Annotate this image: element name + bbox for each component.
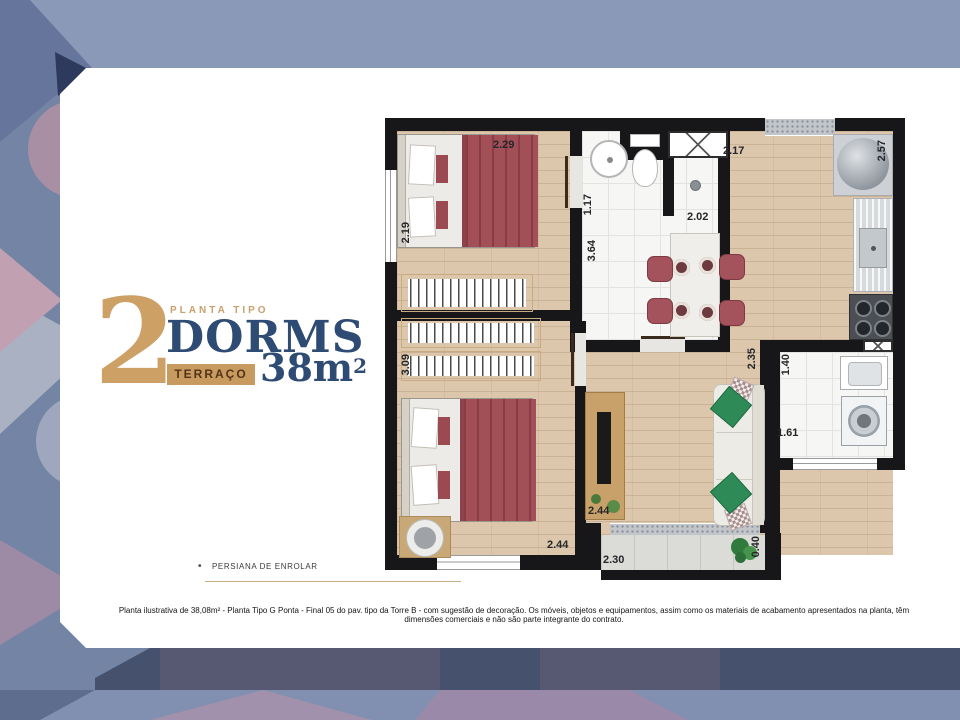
dining-chair bbox=[647, 256, 673, 282]
sofa-backrest bbox=[752, 385, 764, 525]
sofa-cushion-seam bbox=[716, 432, 752, 433]
dining-chair bbox=[647, 298, 673, 324]
dim-label: 2.57 bbox=[877, 140, 888, 161]
bed-blanket bbox=[460, 399, 536, 521]
bed-pillow bbox=[411, 407, 440, 449]
washbasin bbox=[590, 140, 628, 178]
burner bbox=[874, 320, 891, 337]
dim-label: 2.44 bbox=[547, 540, 568, 551]
laundry-window bbox=[793, 458, 877, 470]
burner bbox=[855, 300, 872, 317]
terrace-badge-label: TERRAÇO bbox=[174, 367, 247, 381]
wall-right bbox=[893, 118, 905, 470]
dim-label: 0.40 bbox=[751, 536, 762, 557]
place-setting bbox=[673, 302, 690, 319]
tv bbox=[597, 412, 611, 484]
dim-label: 1.61 bbox=[777, 428, 798, 439]
shower-head bbox=[690, 180, 701, 191]
dim-label: 2.35 bbox=[747, 348, 758, 369]
toilet-bowl bbox=[632, 149, 658, 187]
round-rug bbox=[407, 520, 443, 556]
dim-label: 3.64 bbox=[587, 240, 598, 261]
bed-red-pillow bbox=[436, 201, 448, 229]
terrace-plant bbox=[735, 552, 746, 563]
dim-label: 2.30 bbox=[603, 555, 624, 566]
place-setting bbox=[699, 304, 716, 321]
dim-label: 2.44 bbox=[588, 506, 609, 517]
place-setting bbox=[699, 257, 716, 274]
washing-machine bbox=[841, 396, 887, 446]
bedroom2-door-opening bbox=[575, 333, 586, 386]
bed-pillow bbox=[408, 144, 436, 185]
kitchen-sink bbox=[859, 228, 887, 268]
bed-red-pillow bbox=[438, 471, 450, 499]
dim-label: 3.09 bbox=[401, 354, 412, 375]
dim-label: 2.02 bbox=[687, 212, 708, 223]
place-setting bbox=[673, 259, 690, 276]
legend-label: PERSIANA DE ENROLAR bbox=[212, 563, 318, 571]
marketing-slide: { "slide": { "title": { "number": "2", "… bbox=[0, 0, 960, 720]
bedroom2-door-leaf bbox=[571, 333, 574, 386]
tank-basin bbox=[848, 362, 882, 386]
wall-bathroom-west-top bbox=[570, 131, 582, 156]
shower-box bbox=[668, 131, 728, 158]
wall-terrace-bottom bbox=[601, 570, 781, 580]
burner bbox=[855, 320, 872, 337]
bedroom1-window bbox=[385, 170, 397, 262]
wall-bedroom2-east-top bbox=[575, 321, 586, 333]
legal-disclaimer: Planta ilustrativa de 38,08m² - Planta T… bbox=[100, 607, 928, 625]
bg-band-pink-tint-2 bbox=[540, 648, 720, 690]
legend-bullet: • bbox=[198, 562, 202, 572]
sideboard-plant bbox=[591, 494, 601, 504]
entry-threshold bbox=[765, 118, 835, 136]
dining-chair bbox=[719, 300, 745, 326]
dining-table bbox=[670, 233, 720, 337]
bedroom1-door-leaf bbox=[565, 156, 568, 208]
wardrobe bbox=[401, 318, 541, 348]
wall-terrace-east bbox=[765, 533, 781, 573]
terrace-badge: TERRAÇO bbox=[167, 364, 255, 385]
dim-label: 2.29 bbox=[493, 140, 514, 151]
bathroom-door-opening bbox=[640, 340, 685, 352]
wall-terrace-left bbox=[575, 523, 601, 570]
bed-red-pillow bbox=[438, 417, 450, 445]
dim-label: 1.17 bbox=[583, 194, 594, 215]
bed-headboard bbox=[402, 399, 410, 521]
bed-pillow bbox=[408, 196, 436, 237]
bg-band-pink-tint-1 bbox=[160, 648, 440, 690]
dim-label: 1.40 bbox=[781, 354, 792, 375]
laundry-door-marker bbox=[863, 340, 893, 352]
wardrobe bbox=[401, 351, 541, 381]
bed-pillow bbox=[411, 464, 440, 506]
area-value: 38m2 bbox=[260, 349, 367, 387]
single-bed bbox=[397, 134, 535, 248]
toilet bbox=[630, 134, 660, 147]
wall-bathroom-bottom-right bbox=[685, 340, 730, 352]
dim-label: 2.17 bbox=[723, 146, 744, 157]
floor-plan: 2.29 1.17 2.02 2.17 2.57 2.19 3.64 3.09 … bbox=[385, 118, 905, 597]
bedroom1-door-opening bbox=[570, 156, 582, 208]
double-bed bbox=[401, 398, 533, 522]
stove bbox=[849, 294, 893, 340]
sink-drain bbox=[871, 246, 876, 251]
washbasin-drain bbox=[607, 157, 613, 163]
dim-label: 2.19 bbox=[401, 222, 412, 243]
bed-red-pillow bbox=[436, 155, 448, 183]
dorm-count-number: 2 bbox=[94, 292, 176, 392]
washer-drum bbox=[848, 405, 880, 437]
laundry-tank bbox=[840, 356, 888, 390]
burner bbox=[874, 300, 891, 317]
wardrobe bbox=[401, 274, 533, 312]
dining-chair bbox=[719, 254, 745, 280]
area-exponent: 2 bbox=[353, 354, 367, 378]
bed-blanket bbox=[462, 135, 538, 247]
